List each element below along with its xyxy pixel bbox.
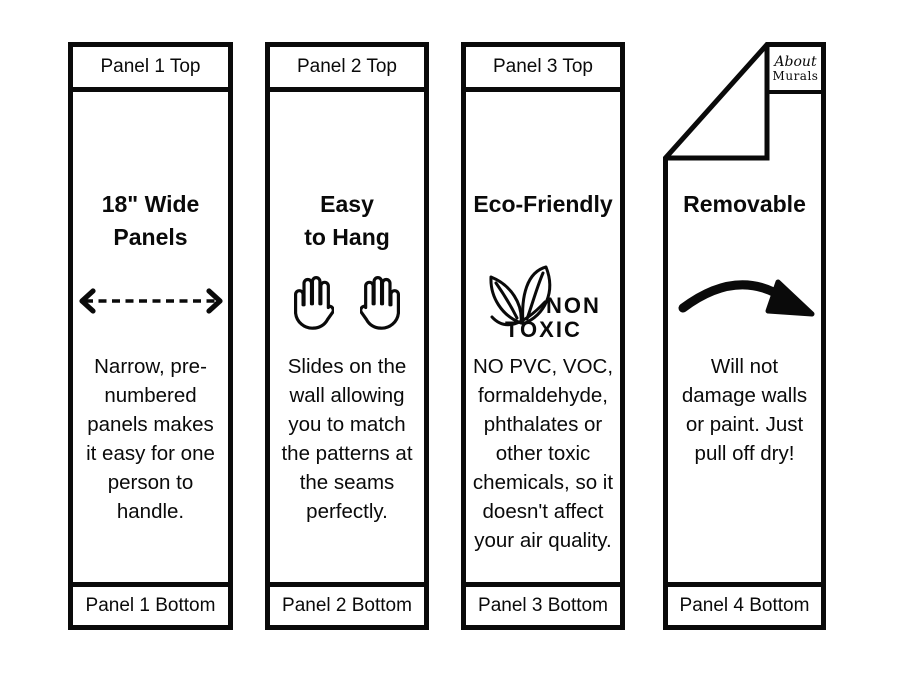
panel-2-description: Slides on the wall allowing you to match…: [272, 352, 422, 526]
panel-4-title: Removable: [663, 188, 826, 221]
panel-1-title: 18" Wide Panels: [73, 188, 228, 254]
non-toxic-leaf-icon: NON TOXIC: [483, 262, 603, 340]
panel-4-bottom-box: Panel 4 Bottom: [668, 587, 821, 625]
width-arrow-zone: [73, 262, 228, 340]
panel-3-bottom-box: Panel 3 Bottom: [466, 582, 620, 625]
panel-3-description: NO PVC, VOC, formaldehyde, phthalates or…: [468, 352, 618, 555]
panel-bottom-label: Panel 4 Bottom: [680, 595, 810, 617]
panel-2-bottom-box: Panel 2 Bottom: [270, 582, 424, 625]
panel-top-label: Panel 1 Top: [100, 56, 200, 78]
infographic-canvas: Panel 1 Top 18" Wide Panels Narrow, pre-…: [0, 0, 900, 675]
panel-3: Panel 3 Top Eco-Friendly NON TOXIC NO P: [461, 42, 625, 630]
panel-bottom-label: Panel 2 Bottom: [282, 595, 412, 617]
open-hand-left-icon: [289, 272, 334, 330]
panel-1-bottom-box: Panel 1 Bottom: [73, 582, 228, 625]
toxic-label: TOXIC: [505, 317, 582, 340]
panel-3-body: Eco-Friendly NON TOXIC NO PVC, VOC, form…: [466, 92, 620, 582]
non-toxic-zone: NON TOXIC: [466, 262, 620, 340]
panel-4-description: Will not damage walls or paint. Just pul…: [667, 352, 822, 468]
open-hand-right-icon: [360, 272, 405, 330]
panel-3-top-box: Panel 3 Top: [466, 47, 620, 92]
panel-2-title: Easy to Hang: [270, 188, 424, 254]
panel-2-top-box: Panel 2 Top: [270, 47, 424, 92]
panel-2: Panel 2 Top Easy to Hang Slides on the w…: [265, 42, 429, 630]
panel-top-label: Panel 3 Top: [493, 56, 593, 78]
panel-1-description: Narrow, pre- numbered panels makes it ea…: [75, 352, 226, 526]
panel-2-body: Easy to Hang Slides on the wall allowing…: [270, 92, 424, 582]
panel-3-title: Eco-Friendly: [466, 188, 620, 221]
panel-bottom-label: Panel 1 Bottom: [86, 595, 216, 617]
hands-zone: [270, 262, 424, 340]
panel-top-label: Panel 2 Top: [297, 56, 397, 78]
left-right-dashed-arrow-icon: [76, 287, 226, 315]
aboutmurals-logo: About Murals: [769, 47, 822, 90]
panel-shape: [666, 45, 824, 628]
panel-1: Panel 1 Top 18" Wide Panels Narrow, pre-…: [68, 42, 233, 630]
logo-word-text: Murals: [773, 70, 819, 83]
panel-4: About Murals Removable Will not damage w…: [663, 42, 826, 630]
non-label: NON: [546, 293, 601, 318]
panel-bottom-label: Panel 3 Bottom: [478, 595, 608, 617]
panel-1-top-box: Panel 1 Top: [73, 47, 228, 92]
panel-4-outline: [663, 42, 826, 630]
panel-1-body: 18" Wide Panels Narrow, pre- numbered pa…: [73, 92, 228, 582]
logo-script-text: About: [774, 55, 816, 70]
